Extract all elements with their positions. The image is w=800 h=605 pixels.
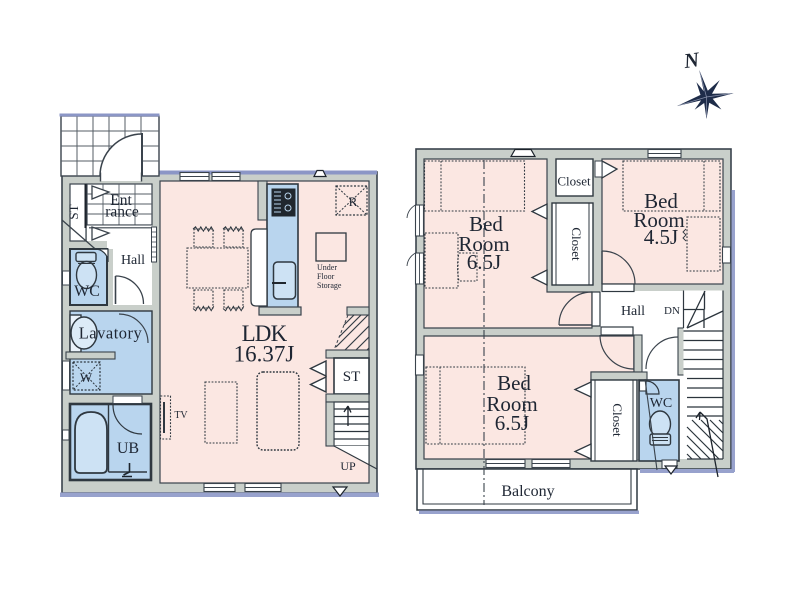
svg-text:DN: DN [664,305,680,317]
svg-text:TV: TV [174,410,188,421]
svg-text:rance: rance [105,204,139,221]
svg-text:UB: UB [117,440,139,457]
svg-text:UP: UP [340,459,356,473]
svg-text:W: W [80,370,93,385]
svg-text:Storage: Storage [317,281,342,290]
svg-text:ST: ST [343,369,361,385]
svg-text:Hall: Hall [621,304,645,319]
svg-text:Lavatory: Lavatory [79,324,143,343]
svg-text:ST: ST [66,204,81,219]
svg-text:Closet: Closet [610,403,625,437]
svg-text:16.37J: 16.37J [234,342,295,367]
svg-text:Floor: Floor [317,272,335,281]
svg-text:6.5J: 6.5J [495,411,529,435]
svg-text:R: R [349,194,358,209]
svg-text:Hall: Hall [121,253,145,268]
svg-text:WC: WC [650,396,673,411]
svg-text:N: N [681,47,701,73]
svg-text:Closet: Closet [569,227,584,261]
svg-text:4.5J: 4.5J [644,225,678,249]
svg-text:Closet: Closet [557,174,591,189]
svg-text:Under: Under [317,263,337,272]
svg-text:Balcony: Balcony [501,483,554,500]
svg-text:WC: WC [74,283,100,300]
